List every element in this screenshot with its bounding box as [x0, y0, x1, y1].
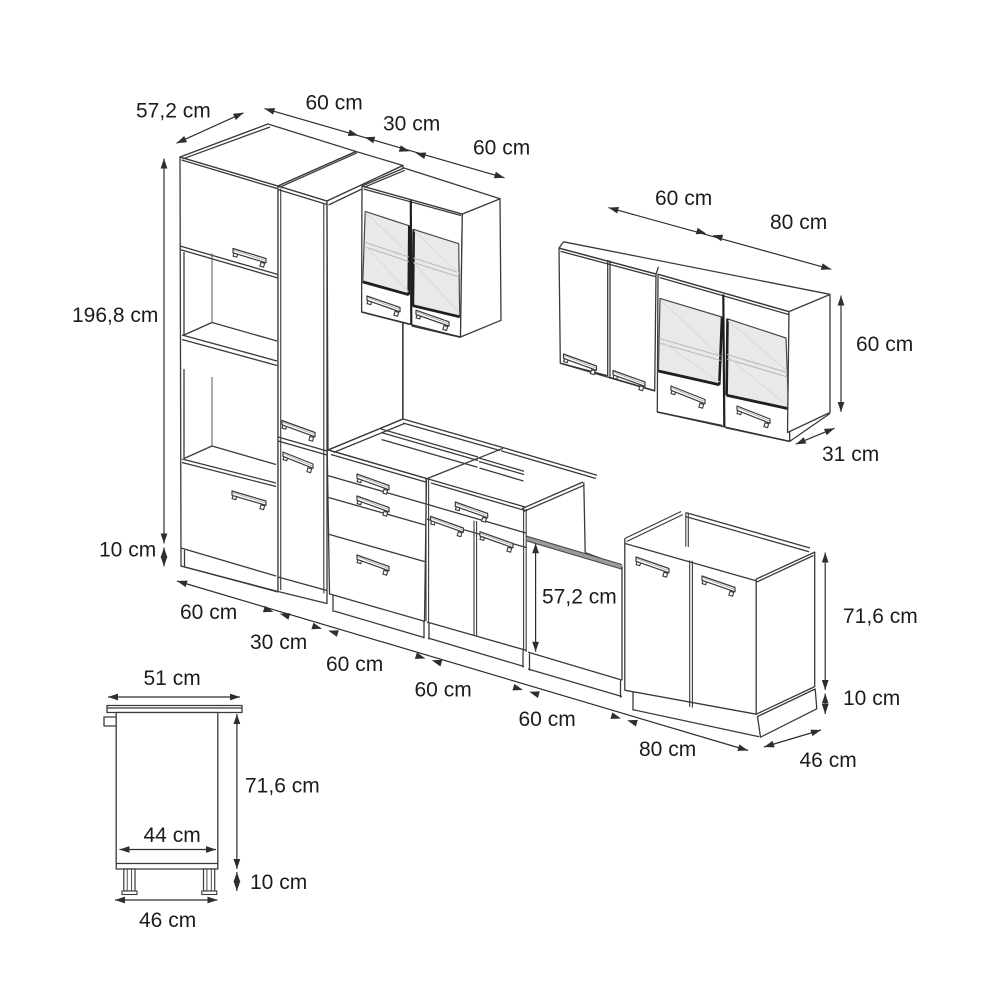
svg-text:80 cm: 80 cm [770, 211, 827, 234]
svg-text:30 cm: 30 cm [383, 113, 440, 136]
svg-text:10 cm: 10 cm [843, 687, 900, 710]
svg-text:10 cm: 10 cm [99, 539, 156, 562]
svg-text:60 cm: 60 cm [306, 92, 363, 115]
svg-text:46 cm: 46 cm [139, 909, 196, 932]
svg-text:51 cm: 51 cm [144, 667, 201, 690]
svg-text:30 cm: 30 cm [250, 631, 307, 654]
svg-text:57,2 cm: 57,2 cm [542, 586, 617, 609]
svg-text:60 cm: 60 cm [326, 653, 383, 676]
svg-text:196,8 cm: 196,8 cm [72, 304, 158, 327]
svg-text:60 cm: 60 cm [180, 601, 237, 624]
svg-text:10 cm: 10 cm [250, 871, 307, 894]
svg-text:71,6 cm: 71,6 cm [245, 775, 320, 798]
svg-text:60 cm: 60 cm [655, 187, 712, 210]
svg-text:60 cm: 60 cm [473, 137, 530, 160]
svg-text:60 cm: 60 cm [856, 333, 913, 356]
svg-text:46 cm: 46 cm [800, 749, 857, 772]
svg-text:31 cm: 31 cm [822, 443, 879, 466]
svg-text:71,6 cm: 71,6 cm [843, 605, 918, 628]
svg-text:44 cm: 44 cm [144, 824, 201, 847]
svg-text:57,2 cm: 57,2 cm [136, 100, 211, 123]
svg-text:60 cm: 60 cm [519, 708, 576, 731]
svg-text:60 cm: 60 cm [415, 679, 472, 702]
svg-text:80 cm: 80 cm [639, 738, 696, 761]
